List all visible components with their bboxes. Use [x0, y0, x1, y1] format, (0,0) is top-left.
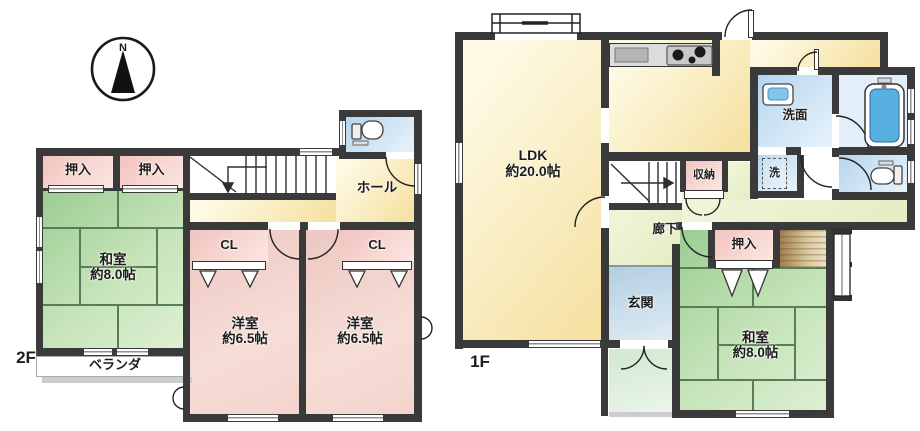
wall: [750, 75, 758, 199]
wall: [601, 143, 609, 196]
window: [299, 148, 333, 156]
room-rouka-3: [682, 200, 907, 222]
wall: [36, 348, 190, 356]
label-hall: ホール: [340, 180, 414, 195]
compass-n-label: N: [113, 42, 133, 54]
label-ldk: LDK 約20.0帖: [483, 148, 583, 179]
door-opening: [601, 196, 609, 228]
label-oshiire-1f: 押入: [715, 237, 773, 251]
bay-window-cap: [832, 228, 852, 234]
room-name: 洋室: [315, 316, 405, 331]
label-cl-1: CL: [190, 238, 268, 253]
window: [339, 120, 346, 146]
wall: [113, 148, 120, 189]
wall: [414, 110, 422, 422]
label-veranda: ベランダ: [60, 358, 170, 373]
room-size: 約8.0帖: [63, 267, 163, 282]
wall: [839, 147, 915, 155]
wall: [750, 67, 915, 75]
wall: [455, 32, 463, 349]
window: [907, 160, 915, 184]
wall: [339, 152, 386, 159]
room-toilet-1f: [839, 155, 907, 192]
kitchen-counter: [609, 43, 716, 67]
room-ldk: [463, 40, 601, 340]
room-hall-band: [190, 200, 336, 222]
wall: [183, 414, 422, 422]
closet-shelf: [684, 190, 724, 199]
room-name: 洋室: [200, 316, 290, 331]
door-leaf: [814, 49, 819, 70]
door-opening: [832, 114, 839, 148]
room-size: 約20.0帖: [483, 164, 583, 180]
window-opening: [495, 32, 577, 40]
wall: [601, 203, 682, 210]
sliding-door: [122, 185, 178, 193]
door-opening: [268, 222, 300, 230]
label-oshiire-1: 押入: [43, 163, 113, 178]
wall: [183, 193, 336, 200]
label-oshiire-2: 押入: [120, 163, 183, 178]
floor-plan: 2F 1F N 押入 押入 和室 約8.0帖 ベランダ ホール CL CL 洋室…: [0, 0, 920, 431]
door-opening: [801, 147, 832, 155]
porch-shadow: [609, 412, 672, 417]
window: [907, 88, 915, 114]
wall: [601, 228, 609, 348]
veranda-shadow: [42, 377, 192, 383]
label-cl-2: CL: [340, 238, 414, 253]
wall: [826, 230, 834, 418]
door-opening: [386, 152, 414, 159]
door-opening: [308, 222, 340, 230]
bay-window-top: [492, 14, 580, 33]
label-laundry: 洗: [762, 167, 787, 179]
stairs-2f-area: [190, 156, 336, 193]
room-rouka-1: [728, 162, 750, 203]
closet-shelf: [192, 261, 266, 270]
door-opening: [620, 340, 668, 348]
room-size: 約8.0帖: [698, 345, 813, 360]
door-leaf: [748, 10, 754, 38]
window: [907, 119, 915, 145]
room-size: 約6.5帖: [315, 331, 405, 346]
closet-shelf: [342, 261, 412, 270]
closet-shelf: [715, 260, 773, 269]
window: [414, 163, 422, 195]
sliding-door: [83, 348, 113, 356]
window: [227, 414, 279, 422]
room-bath: [839, 75, 907, 147]
tatami-line: [43, 227, 183, 229]
floor-label-2f: 2F: [8, 348, 44, 367]
wall: [750, 191, 804, 198]
tatami-line: [43, 304, 183, 306]
tatami-line: [752, 267, 754, 308]
floor-label-1f: 1F: [462, 352, 498, 371]
bay-window-cap: [832, 262, 852, 267]
bay-window-cap: [832, 295, 852, 301]
wall: [773, 230, 780, 268]
window: [735, 410, 790, 418]
room-name: LDK: [483, 148, 583, 164]
wall: [601, 348, 608, 416]
label-shuunou: 収納: [682, 169, 726, 181]
wall: [601, 40, 609, 108]
sliding-door: [48, 185, 104, 193]
label-senmen: 洗面: [758, 108, 832, 122]
label-youshitsu-1: 洋室 約6.5帖: [200, 316, 290, 346]
label-genkan: 玄関: [609, 296, 672, 311]
window: [332, 414, 384, 422]
room-toilet-2f: [346, 117, 414, 152]
wall: [832, 192, 915, 200]
sliding-door: [116, 348, 149, 356]
room-name: 和室: [698, 330, 813, 345]
window: [528, 340, 601, 348]
room-name: 和室: [63, 252, 163, 267]
wall: [797, 152, 804, 193]
wall: [712, 40, 720, 76]
window: [36, 216, 43, 248]
label-youshitsu-2: 洋室 約6.5帖: [315, 316, 405, 346]
label-rouka: 廊下: [640, 222, 690, 236]
wall: [672, 244, 680, 418]
wall: [708, 230, 715, 268]
wall: [183, 148, 190, 422]
wall: [299, 222, 306, 422]
tatami-line: [117, 304, 119, 348]
label-washitsu-2f: 和室 約8.0帖: [63, 252, 163, 282]
tatami-line: [117, 191, 119, 229]
room-size: 約6.5帖: [200, 331, 290, 346]
stairs-1f-area: [609, 162, 682, 203]
label-washitsu-1f: 和室 約8.0帖: [698, 330, 813, 360]
window: [455, 142, 463, 184]
entrance-porch: [609, 349, 672, 412]
engawa-wood-floor: [780, 230, 826, 268]
wall: [339, 110, 422, 117]
genkan-step-line: [609, 265, 672, 267]
door-opening: [832, 157, 839, 189]
window: [36, 250, 43, 284]
